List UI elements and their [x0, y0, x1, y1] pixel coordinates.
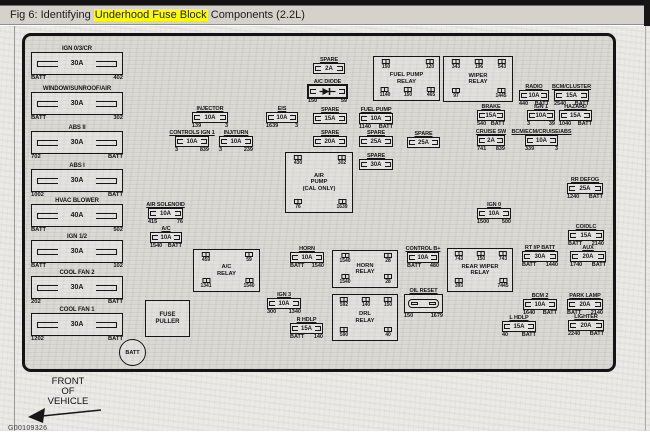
- relay-pin: 430: [294, 155, 302, 166]
- relay-pin-number: 7445: [497, 284, 508, 289]
- fuse-left-circuit: BATT: [31, 115, 46, 121]
- fuse-left-circuit: BATT: [290, 334, 304, 340]
- blade-contact-icon: [96, 61, 117, 67]
- relay-a-c-relay: A/CRELAY4595913411540: [193, 249, 260, 292]
- fuse-left-circuit: BATT: [31, 227, 46, 233]
- maxi-fuse-cool-fan-2: COOL FAN 230A202BATT: [31, 276, 123, 299]
- fuse-ign-3: IGN 310A3001340: [267, 298, 301, 309]
- fuse-left-circuit: 1240: [567, 194, 579, 200]
- fuse-name: COOL FAN 2: [60, 270, 95, 276]
- fuse-right-circuit: 1540: [312, 263, 324, 269]
- relay-pin: 1540: [339, 274, 350, 285]
- fuse-amp-rating: 10A: [527, 93, 541, 99]
- fuse-right-circuit: BATT: [108, 192, 123, 198]
- fuse-name: R HDLP: [297, 317, 317, 323]
- fuse-fuel-pump: FUEL PUMP10A1140BATT: [359, 113, 393, 124]
- fuse-amp-rating: 15A: [485, 113, 497, 119]
- fuse-amp-rating: 10A: [367, 116, 385, 122]
- oil-reset-contact: [408, 299, 439, 308]
- fuse-amp-rating: 10A: [531, 302, 549, 308]
- relay-rear-wiper-relay: REAR WIPERRELAY7431507433937445: [447, 248, 513, 292]
- blade-contact-icon: [37, 249, 58, 255]
- relay-pin: 28: [384, 253, 392, 264]
- relay-pin: 465: [427, 87, 435, 98]
- fuse-amp-rating: 10A: [533, 138, 550, 144]
- fuse-right-circuit: 839: [200, 147, 209, 153]
- fuse-name: SPARE: [367, 130, 385, 136]
- fuse-right-circuit: 502: [113, 227, 123, 233]
- relay-drl-relay: DRLRELAY59214015059040: [332, 294, 398, 341]
- relay-pin-number: 40: [385, 333, 391, 338]
- fuse-injector: INJECTOR10A1393: [192, 112, 228, 123]
- fuse-right-circuit: BATT: [108, 299, 123, 305]
- fuse-left-circuit: 1002: [31, 192, 44, 198]
- blade-contact-icon: [96, 178, 117, 184]
- blade-contact-icon: [37, 178, 58, 184]
- fuse-right-circuit: BATT: [590, 331, 604, 337]
- ac-diode-name: A/C DIODE: [314, 79, 342, 85]
- fuse-puller-label-line: PULLER: [156, 319, 180, 326]
- relay-name-line: RELAY: [217, 271, 236, 277]
- relay-pin-number: 120: [426, 65, 434, 70]
- blade-contact-icon: [337, 66, 343, 71]
- blade-contact-icon: [245, 139, 251, 144]
- fuse-name: CONTROL B+: [406, 246, 441, 252]
- relay-pin: 459: [202, 252, 210, 263]
- oil-reset: OIL RESET 150 1679: [404, 294, 443, 313]
- fuse-spare: SPARE2A: [313, 63, 345, 74]
- fuse-name: RADIO: [525, 84, 542, 90]
- fuse-left-circuit: 440: [519, 101, 528, 107]
- blade-contact-icon: [432, 140, 438, 145]
- fuse-left-circuit: 3: [175, 147, 178, 153]
- fuse-name: FUEL PUMP: [361, 107, 392, 113]
- fuse-park-lamp: PARK LAMP20ABATT2140: [567, 299, 603, 310]
- fuse-left-circuit: 1040: [559, 121, 571, 127]
- maxi-fuse-hvac-blower: HVAC BLOWER40ABATT502: [31, 204, 123, 227]
- relay-pin: 76: [294, 199, 302, 210]
- fuse-bcm-ecm-cruise-abs: BCM/ECM/CRUISE/ABS10A3393: [525, 135, 558, 146]
- blade-contact-icon: [96, 213, 117, 219]
- fuse-right-circuit: BATT: [491, 121, 505, 127]
- relay-air-pump-cal-only: AIRPUMP(CAL ONLY)430302761639: [285, 152, 353, 213]
- fuse-left-circuit: 1500: [477, 219, 489, 225]
- fuse-amp-rating: 20A: [578, 254, 598, 260]
- relay-pin: 393: [455, 278, 463, 289]
- fuse-left-circuit: 202: [31, 299, 41, 305]
- fuse-spare: SPARE30A: [359, 159, 393, 170]
- blade-contact-icon: [96, 249, 117, 255]
- fuse-amp-rating: 15A: [576, 233, 596, 239]
- fuse-name: SPARE: [321, 130, 339, 136]
- relay-pin-number: 28: [385, 259, 391, 264]
- fuse-right-circuit: BATT: [168, 243, 182, 249]
- fuse-horn: HORN10ABATT1540: [290, 252, 324, 263]
- fuse-right-circuit: BATT: [108, 336, 123, 342]
- blade-contact-icon: [37, 285, 58, 291]
- fuse-right-circuit: BATT: [108, 154, 123, 160]
- blade-contact-icon: [549, 302, 555, 307]
- fuse-amp-rating: 25A: [575, 186, 595, 192]
- blade-contact-icon: [290, 115, 296, 120]
- battery-stud: BATT: [119, 339, 146, 366]
- battery-stud-label: BATT: [125, 350, 139, 356]
- fuse-left-circuit: 3: [219, 147, 222, 153]
- fuse-name: HAZARD: [564, 104, 587, 110]
- fuse-left-circuit: BATT: [407, 263, 421, 269]
- fuse-right-circuit: 480: [430, 263, 439, 269]
- maxi-fuse-ign-1-2: IGN 1/230ABATT102: [31, 240, 123, 263]
- fuse-rr-defog: RR DEFOG25A1240BATT: [567, 183, 603, 194]
- fuse-right-circuit: 3: [295, 123, 298, 129]
- relay-pin-number: 140: [362, 303, 370, 308]
- fuse-left-circuit: 1740: [570, 262, 582, 268]
- relay-pin-number: 393: [455, 284, 463, 289]
- fuse-puller-label-line: FUSE: [159, 312, 175, 319]
- fuse-name: LIGHTER: [574, 314, 597, 320]
- blade-contact-icon: [37, 322, 58, 328]
- fuse-name: AIR SOLENOID: [146, 202, 185, 208]
- oil-reset-name: OIL RESET: [409, 288, 437, 294]
- fuse-left-circuit: BATT: [568, 241, 582, 247]
- blade-contact-icon: [595, 302, 601, 307]
- fuse-amp-rating: 30A: [58, 285, 96, 291]
- blade-contact-icon: [316, 255, 322, 260]
- fuse-co-dlc: CO/DLC15ABATT2140: [568, 230, 604, 241]
- relay-pin-number: 592: [340, 303, 348, 308]
- fuse-control-b: CONTROL B+10ABATT480: [407, 252, 439, 263]
- blade-contact-icon: [497, 138, 503, 143]
- fuse-rt-i-p-batt: RT I/P BATT30ABATT1440: [522, 251, 558, 262]
- fuse-amp-rating: 25A: [367, 139, 385, 145]
- fuse-right-circuit: 500: [502, 219, 511, 225]
- blade-contact-icon: [339, 116, 345, 121]
- relay-pin: 150: [404, 87, 412, 98]
- relay-pin-number: 465: [427, 93, 435, 98]
- fuse-aux: AUX20A1740BATT: [570, 251, 606, 262]
- relay-pin-number: 343: [452, 65, 460, 70]
- fuse-l-hdlp: L HDLP15A40BATT: [502, 321, 536, 332]
- fuse-name: RR DEFOG: [571, 177, 599, 183]
- fuse-amp-rating: 20A: [321, 139, 339, 145]
- fuse-amp-rating: 15A: [321, 116, 339, 122]
- fuse-lighter: LIGHTER20A2240BATT: [568, 320, 604, 331]
- fuse-name: IGN 1: [534, 104, 548, 110]
- fuse-name: ABS I: [69, 163, 85, 169]
- fuse-left-circuit: BATT: [31, 75, 46, 81]
- blade-contact-icon: [293, 301, 299, 306]
- ac-diode-right-circuit: 59: [341, 98, 347, 104]
- fuse-right-circuit: 76: [177, 219, 183, 225]
- fuse-amp-rating: 30A: [58, 140, 96, 146]
- fuse-name: INJ/TURN: [224, 130, 249, 136]
- fuse-amp-rating: 20A: [576, 323, 596, 329]
- fuse-amp-rating: 10A: [183, 139, 201, 145]
- blade-contact-icon: [385, 139, 391, 144]
- relay-pin: 1341: [200, 278, 211, 289]
- relay-name-line: RELAY: [355, 318, 374, 324]
- blade-contact-icon: [503, 211, 509, 216]
- fuse-name: BRAKE: [481, 104, 500, 110]
- fuse-amp-rating: 15A: [562, 93, 581, 99]
- fuse-amp-rating: 2A: [485, 138, 497, 144]
- fuse-right-circuit: 839: [496, 146, 505, 152]
- fuse-amp-rating: 10A: [485, 211, 503, 217]
- fuse-name: L HDLP: [509, 315, 528, 321]
- fuse-r-hdlp: R HDLP15ABATT140: [290, 323, 323, 334]
- relay-pin-number: 150: [477, 257, 485, 262]
- maxi-fuse-cool-fan-1: COOL FAN 130A1202BATT: [31, 313, 123, 336]
- blade-contact-icon: [497, 113, 503, 118]
- fuse-spare: SPARE25A: [359, 136, 393, 147]
- fuse-spare: SPARE25A: [407, 137, 440, 148]
- relay-pin-number: 1341: [200, 284, 211, 289]
- fuse-name: RT I/P BATT: [525, 245, 555, 251]
- relay-pin: 140: [362, 297, 370, 308]
- fuse-amp-rating: 10A: [200, 115, 220, 121]
- fuse-left-circuit: 702: [31, 154, 41, 160]
- fuse-block-diagram: A/C DIODE 150 59 OIL RESET 150 1679 FUSE…: [0, 0, 650, 431]
- fuse-air-solenoid: AIR SOLENOID10A41576: [148, 208, 183, 219]
- fuse-left-circuit: 1639: [266, 123, 278, 129]
- maxi-fuse-window-sunroof-air: WINDOW/SUNROOF/AIR30ABATT302: [31, 92, 123, 115]
- fuse-name: A/C: [161, 226, 170, 232]
- fuse-ign-1: IGN 110A339: [527, 110, 555, 121]
- relay-pin: 343: [452, 59, 460, 70]
- fuse-name: HVAC BLOWER: [55, 198, 99, 204]
- blade-contact-icon: [96, 140, 117, 146]
- blade-contact-icon: [411, 302, 418, 305]
- fuse-right-circuit: 1440: [546, 262, 558, 268]
- fuse-right-circuit: BATT: [543, 310, 557, 316]
- fuse-right-circuit: 239: [244, 147, 253, 153]
- relay-pin-number: 28: [385, 280, 391, 285]
- blade-contact-icon: [547, 113, 553, 118]
- fuse-eis: EIS10A16393: [266, 112, 298, 123]
- fuse-amp-rating: 15A: [298, 326, 315, 332]
- relay-pin-number: 1445: [495, 94, 506, 99]
- relay-pin: 1140: [380, 87, 391, 98]
- ac-diode: A/C DIODE 150 59: [307, 84, 348, 99]
- fuse-right-circuit: 1340: [289, 309, 301, 315]
- relay-name-line: RELAY: [397, 79, 416, 85]
- fuse-right-circuit: 39: [549, 121, 555, 127]
- maxi-fuse-abs-ii: ABS II30A702BATT: [31, 131, 123, 154]
- relay-name-line: RELAY: [468, 79, 487, 85]
- fuse-amp-rating: 30A: [367, 162, 385, 168]
- fuse-amp-rating: 30A: [530, 254, 550, 260]
- blade-contact-icon: [37, 61, 58, 67]
- relay-pin-number: 590: [340, 333, 348, 338]
- relay-pin: 120: [426, 59, 434, 70]
- fuse-amp-rating: 30A: [58, 249, 96, 255]
- blade-contact-icon: [96, 101, 117, 107]
- fuse-right-circuit: 140: [314, 334, 323, 340]
- blade-contact-icon: [528, 324, 534, 329]
- fuse-spare: SPARE20A: [313, 136, 347, 147]
- fuse-amp-rating: 10A: [274, 115, 290, 121]
- fuse-right-circuit: 102: [113, 263, 123, 269]
- fuse-right-circuit: BATT: [589, 194, 603, 200]
- relay-pin-number: 59: [246, 258, 252, 263]
- blade-contact-icon: [37, 140, 58, 146]
- relay-pin: 743: [499, 251, 507, 262]
- fuse-amp-rating: 10A: [158, 235, 174, 241]
- blade-contact-icon: [550, 254, 556, 259]
- relay-pin: 7445: [497, 278, 508, 289]
- fuse-inj-turn: INJ/TURN10A3239: [219, 136, 253, 147]
- fuse-amp-rating: 40A: [58, 213, 96, 219]
- relay-pin-number: 302: [338, 161, 346, 166]
- relay-pin-number: 459: [202, 258, 210, 263]
- fuse-amp-rating: 10A: [156, 211, 175, 217]
- relay-wiper-relay: WIPERRELAY343196543971445: [443, 56, 513, 102]
- blade-contact-icon: [96, 322, 117, 328]
- maxi-fuse-abs-i: ABS I30A1002BATT: [31, 169, 123, 192]
- diode-symbol-icon: [316, 87, 339, 96]
- fuse-left-circuit: 1202: [31, 336, 44, 342]
- fuse-amp-rating: 2A: [321, 66, 337, 72]
- fuse-left-circuit: 40: [502, 332, 508, 338]
- fuse-left-circuit: 300: [267, 309, 276, 315]
- fuse-amp-rating: 25A: [415, 140, 432, 146]
- fuse-name: IGN 3: [277, 292, 291, 298]
- fuse-name: AUX: [582, 245, 593, 251]
- blade-contact-icon: [37, 101, 58, 107]
- fuse-bcm-cluster: BCM/CLUSTER15A2540BATT: [554, 90, 589, 101]
- fuse-name: IGN 0: [487, 202, 501, 208]
- blade-contact-icon: [596, 233, 602, 238]
- fuse-left-circuit: 540: [477, 121, 486, 127]
- relay-name-line: (CAL ONLY): [303, 186, 336, 192]
- fuse-amp-rating: 20A: [575, 302, 595, 308]
- relay-pin: 592: [340, 297, 348, 308]
- relay-pin: 59: [245, 252, 253, 263]
- relay-pin: 150: [382, 59, 390, 70]
- fuse-puller: FUSE PULLER: [145, 300, 190, 337]
- blade-contact-icon: [174, 235, 180, 240]
- oil-reset-right-circuit: 1679: [431, 313, 443, 319]
- blade-contact-icon: [339, 139, 345, 144]
- relay-pin: 97: [452, 88, 460, 99]
- fuse-a-c: A/C10A1540BATT: [150, 232, 182, 243]
- fuse-name: CO/DLC: [576, 224, 596, 230]
- fuse-amp-rating: 30A: [58, 61, 96, 67]
- fuse-left-circuit: 3: [527, 121, 530, 127]
- fuse-amp-rating: 10A: [535, 113, 547, 119]
- relay-pin-number: 97: [453, 94, 459, 99]
- fuse-right-circuit: BATT: [522, 332, 536, 338]
- relay-fuel-pump-relay: FUEL PUMPRELAY1501201140150465: [373, 56, 440, 101]
- relay-pin: 302: [338, 155, 346, 166]
- relay-pin: 1445: [495, 88, 506, 99]
- fuse-left-circuit: 741: [477, 146, 486, 152]
- fuse-name: EIS: [278, 106, 287, 112]
- blade-contact-icon: [595, 186, 601, 191]
- relay-pin-number: 543: [498, 65, 506, 70]
- blade-contact-icon: [339, 89, 345, 94]
- fuse-name: BCM 2: [532, 293, 549, 299]
- fuse-right-circuit: 402: [113, 75, 123, 81]
- blade-contact-icon: [584, 113, 590, 118]
- fuse-name: HORN: [299, 246, 315, 252]
- fuse-left-circuit: 2240: [568, 331, 580, 337]
- fuse-cruise-sw: CRUISE SW2A741839: [477, 135, 505, 146]
- fuse-right-circuit: BATT: [592, 262, 606, 268]
- fuse-amp-rating: 30A: [58, 322, 96, 328]
- relay-name-line: RELAY: [470, 270, 489, 276]
- relay-horn-relay: HORNRELAY154028154028: [332, 250, 398, 288]
- blade-contact-icon: [581, 93, 587, 98]
- blade-contact-icon: [598, 254, 604, 259]
- relay-name-line: RELAY: [355, 269, 374, 275]
- relay-pin-number: 743: [455, 257, 463, 262]
- fuse-left-circuit: 139: [192, 123, 201, 129]
- blade-contact-icon: [96, 285, 117, 291]
- fuse-left-circuit: 415: [148, 219, 157, 225]
- fuse-name: CONTROLS IGN 1: [169, 130, 214, 136]
- fuse-name: SPARE: [320, 57, 338, 63]
- fuse-name: PARK LAMP: [569, 293, 600, 299]
- blade-contact-icon: [385, 116, 391, 121]
- relay-pin: 543: [498, 59, 506, 70]
- fuse-amp-rating: 30A: [58, 101, 96, 107]
- relay-pin-number: 196: [475, 65, 483, 70]
- relay-pin: 40: [384, 327, 392, 338]
- oil-reset-left-circuit: 150: [404, 313, 413, 319]
- blade-contact-icon: [315, 326, 321, 331]
- fuse-name: WINDOW/SUNROOF/AIR: [43, 86, 111, 92]
- relay-pin-number: 430: [294, 161, 302, 166]
- fuse-right-circuit: 3: [555, 146, 558, 152]
- ac-diode-left-circuit: 150: [308, 98, 317, 104]
- fuse-name: COOL FAN 1: [60, 307, 95, 313]
- fuse-amp-rating: 15A: [510, 324, 528, 330]
- relay-pin: 1540: [339, 253, 350, 264]
- relay-pin: 743: [455, 251, 463, 262]
- fuse-left-circuit: 339: [525, 146, 534, 152]
- fuse-name: BCM/CLUSTER: [552, 84, 591, 90]
- fuse-amp-rating: 10A: [415, 255, 431, 261]
- fuse-name: INJECTOR: [197, 106, 224, 112]
- fuse-right-circuit: 302: [113, 115, 123, 121]
- relay-pin-number: 150: [384, 303, 392, 308]
- relay-pin: 150: [477, 251, 485, 262]
- fuse-amp-rating: 10A: [227, 139, 245, 145]
- blade-contact-icon: [429, 302, 436, 305]
- blade-contact-icon: [37, 213, 58, 219]
- fuse-radio: RADIO10A440BATT: [519, 90, 549, 101]
- relay-pin-number: 1540: [243, 284, 254, 289]
- blade-contact-icon: [201, 139, 207, 144]
- front-of-vehicle-arrow: [26, 402, 104, 426]
- fuse-name: SPARE: [367, 153, 385, 159]
- fuse-left-circuit: BATT: [31, 263, 46, 269]
- fuse-left-circuit: BATT: [522, 262, 536, 268]
- fuse-amp-rating: 10A: [275, 301, 293, 307]
- relay-pin-number: 1140: [380, 93, 391, 98]
- fuse-amp-rating: 15A: [567, 113, 584, 119]
- fuse-hazard: HAZARD15A1040BATT: [559, 110, 592, 121]
- relay-pin-number: 1639: [336, 205, 347, 210]
- maxi-fuse-ign-0-3-cr: IGN 0/3/CR30ABATT402: [31, 52, 123, 75]
- fuse-spare: SPARE15A: [313, 113, 347, 124]
- fuse-right-circuit: 3: [225, 123, 228, 129]
- relay-pin-number: 150: [404, 93, 412, 98]
- fuse-bcm-2: BCM 210A1640BATT: [523, 299, 557, 310]
- fuse-brake: BRAKE15A540BATT: [477, 110, 505, 121]
- relay-pin-number: 1540: [339, 280, 350, 285]
